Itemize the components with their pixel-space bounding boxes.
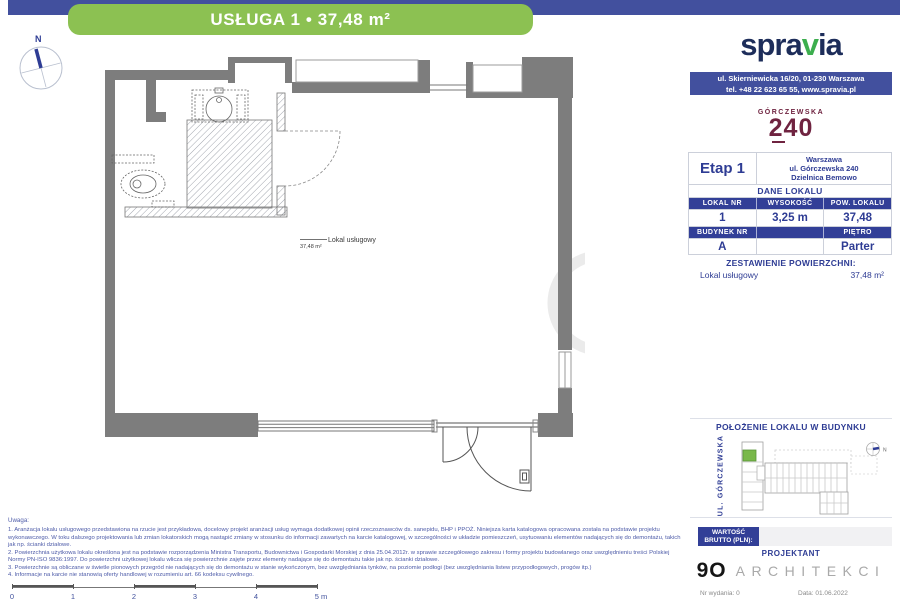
ramp-symbol	[152, 201, 174, 207]
scale-3: 3	[193, 592, 197, 600]
spravia-logo: spravia	[690, 27, 892, 63]
scale-4: 4	[254, 592, 258, 600]
issue-date: Data: 01.06.2022	[798, 590, 848, 597]
value-budynek-nr: A	[689, 239, 756, 254]
window-right	[559, 352, 571, 388]
door-closer	[520, 470, 529, 483]
page-title: USŁUGA 1 • 37,48 m²	[68, 4, 533, 35]
section-title-dane-lokalu: DANE LOKALU	[689, 185, 891, 197]
value-wysokosc: 3,25 m	[756, 210, 824, 226]
address-line-1: ul. Skierniewicka 16/20, 01-230 Warszawa	[690, 73, 892, 84]
notes-label: Uwaga:	[8, 517, 682, 524]
address-line-2: tel. +48 22 623 65 55, www.spravia.pl	[690, 84, 892, 95]
header-lokal-nr: LOKAL NR	[689, 198, 756, 209]
highlighted-unit	[743, 450, 756, 461]
stage-label: Etap 1	[689, 153, 756, 184]
logo-accent-letter: v	[802, 27, 818, 62]
note-1: 1. Aranżacja lokalu usługowego przedstaw…	[8, 527, 682, 550]
window-bottom	[258, 421, 434, 431]
exterior-walls	[105, 57, 573, 437]
gorczewska-240-logo: GÓRCZEWSKA 240	[690, 109, 892, 143]
gross-price-value	[759, 527, 892, 546]
mini-compass-icon: N	[867, 443, 888, 456]
compass-n-label: N	[35, 34, 42, 44]
sample-room-block	[187, 120, 272, 208]
catalog-card-page: USŁUGA 1 • 37,48 m² N	[0, 0, 900, 600]
note-4: 4. Informacje na karcie nie stanowią ofe…	[8, 572, 682, 580]
areas-summary-row: Lokal usługowy 37,48 m²	[700, 270, 884, 280]
scale-1: 1	[71, 592, 75, 600]
divider	[690, 418, 892, 419]
mini-compass-label: N	[883, 448, 887, 454]
issue-number: Nr wydania: 0	[700, 590, 740, 597]
scale-0: 0	[10, 592, 14, 600]
header-pow-lokalu: POW. LOKALU	[823, 198, 891, 209]
note-2: 2. Powierzchnia użytkowa lokalu określon…	[8, 550, 682, 565]
room-name: Lokal usługowy	[328, 237, 376, 244]
room-label: Lokal usługowy 37,48 m²	[300, 237, 376, 250]
header-wysokosc: WYSOKOŚĆ	[756, 198, 824, 209]
compass-rose: N	[5, 28, 77, 100]
toilet-symbol	[112, 155, 174, 207]
architect-logo: 9O ARCHITEKCI	[690, 559, 892, 583]
scale-2: 2	[132, 592, 136, 600]
street-label: UL. GÓRCZEWSKA	[718, 431, 725, 521]
note-3: 3. Powierzchnie są obliczane w świetle p…	[8, 565, 682, 573]
project-address: Warszawa ul. Górczewska 240 Dzielnica Be…	[756, 153, 891, 184]
sink-symbol	[192, 88, 248, 122]
gross-price-label: WARTOŚĆ BRUTTO (PLN):	[698, 527, 759, 546]
value-pow-lokalu: 37,48	[823, 210, 891, 226]
brand-address: ul. Skierniewicka 16/20, 01-230 Warszawa…	[690, 72, 892, 95]
unit-info-table: Etap 1 Warszawa ul. Górczewska 240 Dziel…	[688, 152, 892, 255]
architect-logo-text: ARCHITEKCI	[736, 563, 886, 579]
entry-door	[432, 420, 538, 491]
scale-5: 5 m	[315, 592, 328, 600]
header-pietro: PIĘTRO	[823, 227, 891, 238]
area-value: 37,48 m²	[850, 270, 884, 280]
areas-summary-title: ZESTAWIENIE POWIERZCHNI:	[690, 258, 892, 268]
area-name: Lokal usługowy	[700, 270, 758, 280]
floor-plan: Lokal usługowy 37,48 m²	[95, 50, 585, 515]
interior-door	[285, 131, 340, 186]
header-budynek-nr: BUDYNEK NR	[689, 227, 756, 238]
notes-block: Uwaga: 1. Aranżacja lokalu usługowego pr…	[8, 517, 682, 580]
window-top	[430, 85, 468, 90]
room-area: 37,48 m²	[300, 244, 322, 250]
designer-title: PROJEKTANT	[690, 549, 892, 558]
divider	[690, 517, 892, 518]
value-pietro: Parter	[823, 239, 891, 254]
building-location-map: N	[735, 438, 893, 515]
compass-needle	[36, 49, 41, 68]
value-lokal-nr: 1	[689, 210, 756, 226]
architect-logo-number: 9O	[697, 559, 727, 583]
scale-bar: 0 1 2 3 4 5 m	[8, 584, 338, 600]
